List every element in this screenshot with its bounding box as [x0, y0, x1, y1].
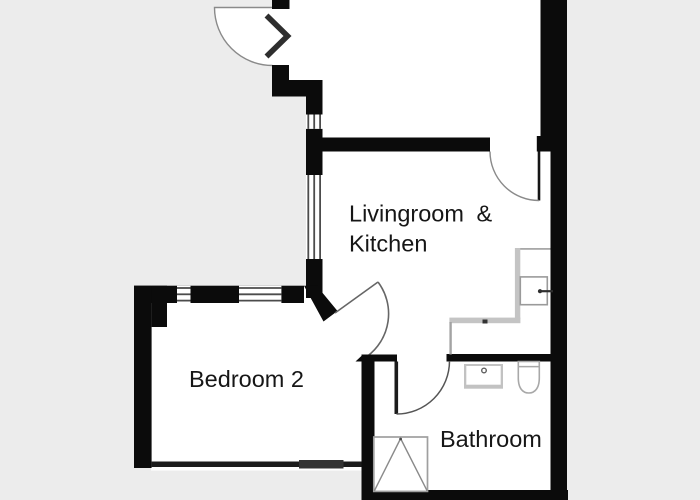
svg-text:Kitchen: Kitchen — [349, 231, 427, 257]
svg-text:&: & — [477, 201, 493, 227]
svg-text:Livingroom: Livingroom — [349, 201, 464, 227]
svg-text:Bedroom 2: Bedroom 2 — [189, 366, 304, 392]
svg-text:Bathroom: Bathroom — [440, 426, 542, 452]
